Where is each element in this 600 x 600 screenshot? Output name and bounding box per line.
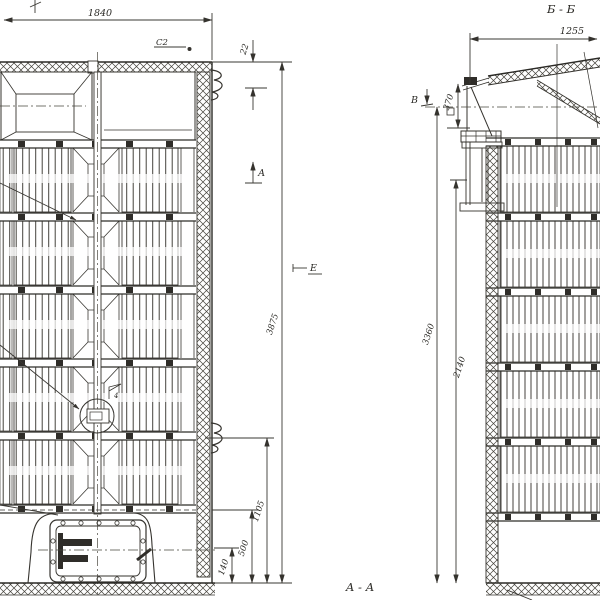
frame-band — [486, 138, 600, 146]
frame-band — [486, 438, 600, 446]
side-wall — [197, 62, 222, 583]
door-hinge-bar — [58, 533, 63, 569]
dim-2140-label: 2140 — [452, 355, 469, 380]
section-tube-field — [486, 44, 600, 521]
dim-22-label: 22 — [238, 43, 251, 57]
frame-band — [486, 363, 600, 371]
pedestal — [28, 513, 155, 583]
access-door — [50, 520, 146, 582]
dim-1255-label: 1255 — [560, 26, 584, 37]
front-view: 4 — [0, 0, 322, 595]
drawing-svg: 4 — [0, 0, 600, 600]
door-grate-bar — [62, 539, 92, 546]
section-bb-title: Б - Б — [546, 2, 576, 16]
ground-left — [0, 583, 215, 595]
dim-3360-label: 3360 — [421, 322, 437, 346]
ground-right — [486, 583, 600, 600]
weld-point — [188, 47, 192, 51]
door-latch — [137, 549, 151, 560]
engineering-drawing-sheet: 4 — [0, 0, 600, 600]
detail-flag-label: 4 — [113, 392, 118, 400]
tube-row — [500, 371, 600, 437]
tube-row — [500, 296, 600, 362]
tube-row — [500, 221, 600, 287]
sloped-roof — [462, 52, 600, 128]
frame-band — [486, 513, 600, 521]
dim-1840-label: 1840 — [88, 8, 112, 19]
dim-140-label: 140 — [217, 558, 232, 577]
section-bb-view: Б - Б — [410, 2, 600, 600]
view-arrow-v-label: В — [410, 95, 418, 106]
weld-mark-label: С2 — [156, 38, 168, 48]
door-grate-bar — [62, 555, 88, 562]
dim-3875-label: 3875 — [265, 313, 281, 337]
dim-500-label: 500 — [237, 539, 252, 558]
inlet-top-flange — [464, 77, 477, 85]
upper-hopper-right — [101, 72, 195, 140]
section-arrow-a-label: А — [257, 168, 265, 179]
base-and-door — [0, 510, 216, 583]
tube-row — [500, 146, 600, 212]
upper-hopper-left — [0, 72, 92, 140]
tube-row — [500, 446, 600, 512]
frame-band — [486, 288, 600, 296]
view-marker-e-label: Е — [309, 263, 317, 274]
section-aa-title: А - А — [345, 580, 375, 594]
frame-band — [486, 213, 600, 221]
roof-insulation — [0, 61, 212, 73]
dim-1105-label: 1105 — [251, 500, 267, 524]
door-bolts — [51, 521, 145, 581]
